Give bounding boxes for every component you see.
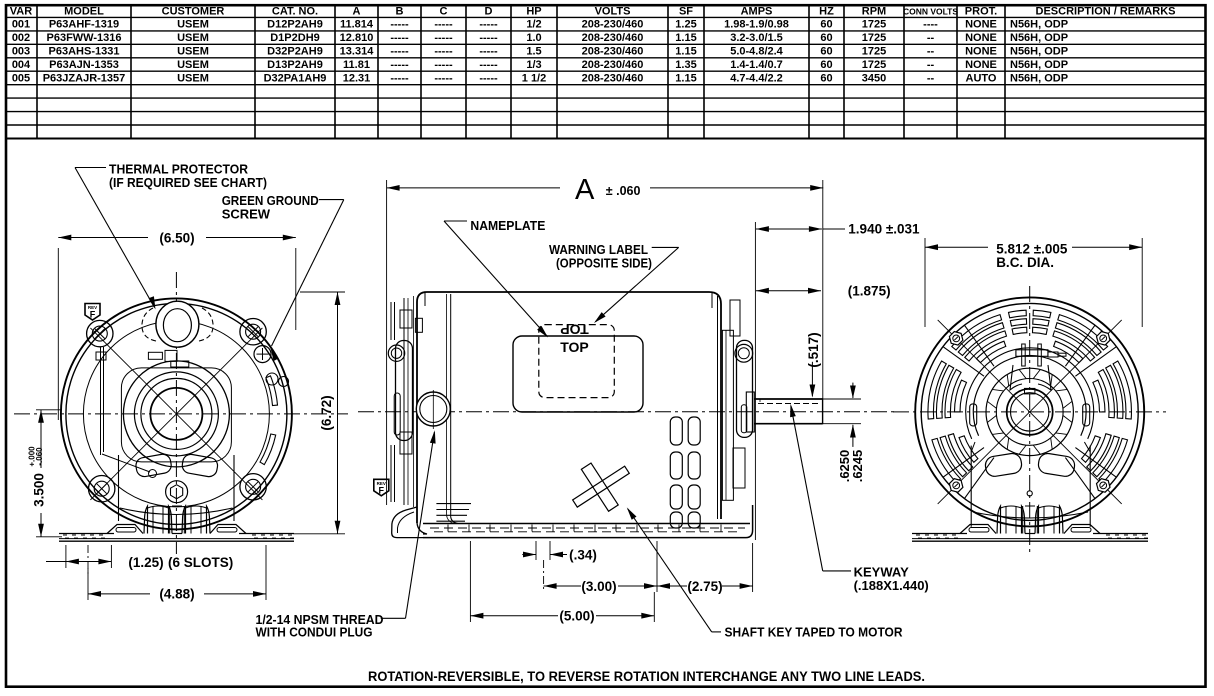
svg-text:USEM: USEM [177, 46, 209, 58]
svg-text:F: F [90, 310, 96, 320]
svg-text:208-230/460: 208-230/460 [582, 73, 644, 85]
svg-text:003: 003 [12, 46, 30, 58]
svg-text:CUSTOMER: CUSTOMER [162, 5, 225, 17]
svg-text:3.2-3.0/1.5: 3.2-3.0/1.5 [730, 32, 783, 44]
svg-text:11.81: 11.81 [343, 59, 370, 71]
svg-text:(1.25): (1.25) [128, 555, 163, 570]
svg-text:1.0: 1.0 [526, 32, 541, 44]
svg-text:NONE: NONE [965, 59, 997, 71]
svg-text:11.814: 11.814 [340, 19, 374, 31]
svg-text:.6245: .6245 [850, 450, 865, 483]
svg-text:12.31: 12.31 [343, 73, 371, 85]
svg-text:1.940 ±.031: 1.940 ±.031 [848, 222, 920, 237]
svg-text:-----: ----- [390, 46, 409, 58]
svg-text:(IF REQUIRED SEE CHART): (IF REQUIRED SEE CHART) [109, 175, 267, 190]
svg-text:(4.88): (4.88) [159, 587, 194, 602]
svg-text:1.15: 1.15 [675, 32, 696, 44]
svg-text:60: 60 [820, 19, 832, 31]
svg-text:NONE: NONE [965, 19, 997, 31]
svg-text:D32P2AH9: D32P2AH9 [267, 46, 323, 58]
svg-text:P63AHF-1319: P63AHF-1319 [49, 19, 119, 31]
svg-text:-----: ----- [434, 46, 453, 58]
svg-text:RPM: RPM [862, 5, 886, 17]
svg-text:NAMEPLATE: NAMEPLATE [470, 218, 545, 233]
svg-text:1725: 1725 [862, 32, 886, 44]
svg-text:-----: ----- [479, 73, 498, 85]
svg-text:P63AJN-1353: P63AJN-1353 [49, 59, 119, 71]
svg-text:AMPS: AMPS [741, 5, 773, 17]
svg-text:-----: ----- [390, 59, 409, 71]
svg-text:1.15: 1.15 [675, 73, 696, 85]
svg-text:USEM: USEM [177, 19, 209, 31]
svg-text:N56H, ODP: N56H, ODP [1010, 73, 1068, 85]
svg-text:HZ: HZ [819, 5, 834, 17]
svg-text:(.34): (.34) [569, 547, 597, 562]
svg-text:CONN VOLTS: CONN VOLTS [903, 6, 958, 16]
svg-text:-----: ----- [434, 73, 453, 85]
svg-text:3.500: 3.500 [32, 473, 47, 507]
svg-text:-----: ----- [479, 19, 498, 31]
svg-text:B.C. DIA.: B.C. DIA. [996, 255, 1054, 270]
svg-text:D12P2AH9: D12P2AH9 [267, 19, 323, 31]
svg-text:A: A [575, 174, 595, 206]
svg-text:WITH CONDUI PLUG: WITH CONDUI PLUG [256, 624, 373, 639]
svg-text:1/2: 1/2 [526, 19, 541, 31]
svg-text:P63AHS-1331: P63AHS-1331 [49, 46, 120, 58]
svg-text:A: A [353, 5, 361, 17]
svg-text:60: 60 [820, 32, 832, 44]
svg-text:SHAFT KEY TAPED TO MOTOR: SHAFT KEY TAPED TO MOTOR [725, 624, 904, 639]
svg-text:(3.00): (3.00) [581, 579, 616, 594]
svg-text:3450: 3450 [862, 73, 886, 85]
svg-text:(2.75): (2.75) [687, 579, 722, 594]
svg-text:208-230/460: 208-230/460 [582, 32, 644, 44]
svg-text:HP: HP [526, 5, 541, 17]
svg-text:CAT. NO.: CAT. NO. [272, 5, 318, 17]
svg-text:1.98-1.9/0.98: 1.98-1.9/0.98 [724, 19, 789, 31]
svg-text:(6.50): (6.50) [159, 230, 194, 245]
svg-text:1.5: 1.5 [526, 46, 541, 58]
svg-text:1.4-1.4/0.7: 1.4-1.4/0.7 [730, 59, 783, 71]
svg-text:VAR: VAR [10, 5, 32, 17]
svg-text:60: 60 [820, 59, 832, 71]
svg-text:004: 004 [12, 59, 31, 71]
svg-text:F: F [379, 485, 385, 495]
svg-text:----: ---- [923, 19, 938, 31]
svg-text:VOLTS: VOLTS [595, 5, 631, 17]
svg-text:1.15: 1.15 [675, 46, 696, 58]
svg-text:N56H, ODP: N56H, ODP [1010, 46, 1068, 58]
svg-text:D32PA1AH9: D32PA1AH9 [264, 73, 327, 85]
svg-text:1/3: 1/3 [526, 59, 541, 71]
svg-text:-----: ----- [479, 46, 498, 58]
svg-text:AUTO: AUTO [966, 73, 997, 85]
svg-text:(OPPOSITE SIDE): (OPPOSITE SIDE) [556, 255, 652, 270]
svg-text:1.25: 1.25 [675, 19, 696, 31]
svg-text:-----: ----- [434, 59, 453, 71]
svg-text:B: B [396, 5, 404, 17]
svg-text:D13P2AH9: D13P2AH9 [267, 59, 323, 71]
svg-text:(5.00): (5.00) [559, 609, 594, 624]
svg-text:± .060: ± .060 [606, 184, 641, 198]
svg-text:4.7-4.4/2.2: 4.7-4.4/2.2 [730, 73, 783, 85]
svg-text:5.0-4.8/2.4: 5.0-4.8/2.4 [730, 46, 783, 58]
svg-text:60: 60 [820, 46, 832, 58]
svg-text:DESCRIPTION / REMARKS: DESCRIPTION / REMARKS [1036, 5, 1176, 17]
svg-text:D: D [485, 5, 493, 17]
svg-text:60: 60 [820, 73, 832, 85]
svg-text:--: -- [927, 46, 935, 58]
svg-text:002: 002 [12, 32, 30, 44]
svg-text:-----: ----- [479, 32, 498, 44]
svg-text:NONE: NONE [965, 32, 997, 44]
svg-text:P63FWW-1316: P63FWW-1316 [47, 32, 122, 44]
svg-text:13.314: 13.314 [340, 46, 375, 58]
svg-text:208-230/460: 208-230/460 [582, 46, 644, 58]
svg-text:-.060: -.060 [35, 447, 44, 466]
svg-text:001: 001 [12, 19, 30, 31]
svg-text:1725: 1725 [862, 59, 886, 71]
svg-text:208-230/460: 208-230/460 [582, 19, 644, 31]
svg-text:--: -- [927, 59, 935, 71]
svg-text:1725: 1725 [862, 46, 886, 58]
svg-text:208-230/460: 208-230/460 [582, 59, 644, 71]
svg-text:-----: ----- [390, 32, 409, 44]
svg-text:(6 SLOTS): (6 SLOTS) [168, 555, 233, 570]
svg-text:(6.72): (6.72) [319, 395, 334, 430]
svg-text:-----: ----- [434, 19, 453, 31]
svg-text:USEM: USEM [177, 32, 209, 44]
svg-text:USEM: USEM [177, 73, 209, 85]
svg-text:N56H, ODP: N56H, ODP [1010, 59, 1068, 71]
svg-text:MODEL: MODEL [64, 5, 104, 17]
svg-text:N56H, ODP: N56H, ODP [1010, 19, 1068, 31]
svg-text:12.810: 12.810 [340, 32, 374, 44]
svg-text:-----: ----- [434, 32, 453, 44]
svg-text:--: -- [927, 32, 935, 44]
svg-text:-----: ----- [390, 73, 409, 85]
svg-text:-----: ----- [390, 19, 409, 31]
svg-text:C: C [440, 5, 448, 17]
svg-text:1725: 1725 [862, 19, 886, 31]
svg-text:(.188X1.440): (.188X1.440) [854, 578, 929, 593]
svg-text:D1P2DH9: D1P2DH9 [270, 32, 320, 44]
svg-text:PROT.: PROT. [965, 5, 997, 17]
svg-text:(.517): (.517) [806, 332, 821, 367]
svg-text:005: 005 [12, 73, 30, 85]
svg-text:-----: ----- [479, 59, 498, 71]
svg-text:P63JZAJR-1357: P63JZAJR-1357 [43, 73, 126, 85]
svg-text:SCREW: SCREW [222, 207, 271, 222]
svg-text:1 1/2: 1 1/2 [522, 73, 546, 85]
svg-text:USEM: USEM [177, 59, 209, 71]
svg-text:ROTATION-REVERSIBLE, TO REVERS: ROTATION-REVERSIBLE, TO REVERSE ROTATION… [368, 669, 925, 684]
svg-text:NONE: NONE [965, 46, 997, 58]
svg-text:SF: SF [679, 5, 693, 17]
svg-text:1.35: 1.35 [675, 59, 696, 71]
svg-text:N56H, ODP: N56H, ODP [1010, 32, 1068, 44]
svg-text:(1.875): (1.875) [848, 284, 891, 299]
svg-text:--: -- [927, 73, 935, 85]
svg-text:TOP: TOP [560, 339, 589, 355]
svg-text:TOP: TOP [560, 322, 589, 338]
